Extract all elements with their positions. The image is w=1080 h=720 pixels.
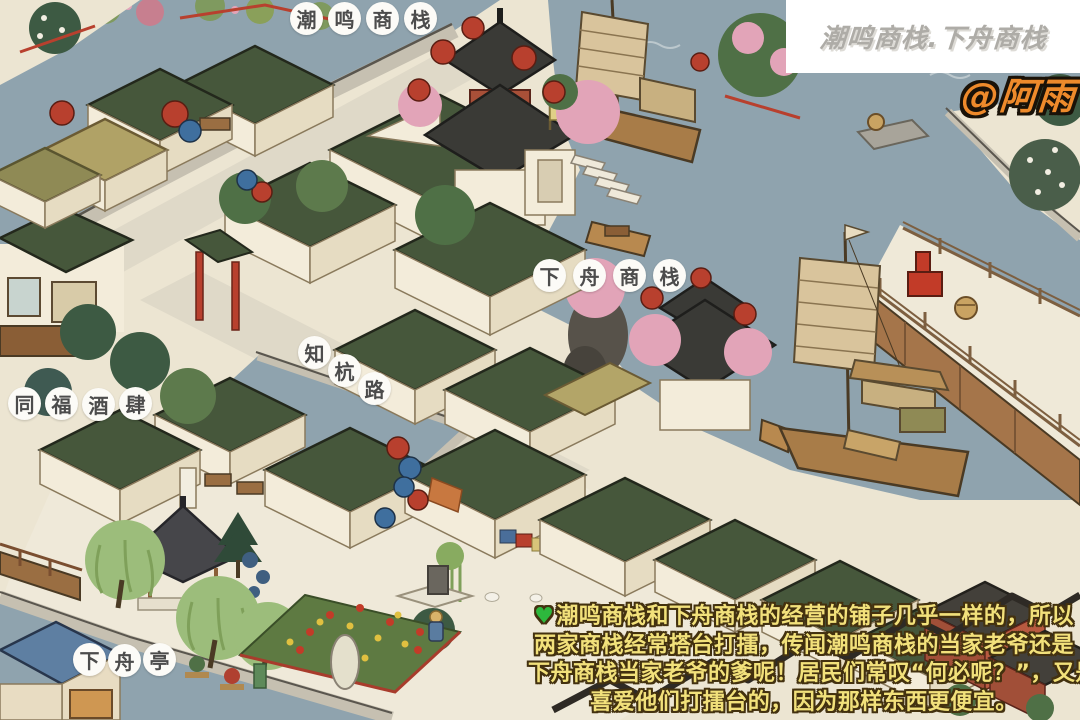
title-band: 潮鸣商栈.下舟商栈 xyxy=(786,0,1080,73)
caption-line: 两家商栈经常搭台打擂，传闻潮鸣商栈的当家老爷还是 xyxy=(528,632,1080,661)
label-char: 鸣 xyxy=(328,2,361,35)
pier-basket xyxy=(955,297,977,319)
label-char: 酒 xyxy=(82,388,115,421)
label-char: 肆 xyxy=(119,387,152,420)
caption-line: 喜爱他们打擂台的，因为那样东西更便宜。 xyxy=(528,689,1080,718)
label-char: 栈 xyxy=(653,259,686,292)
leaf-stone xyxy=(331,635,359,689)
caption-line: 下舟商栈当家老爷的爹呢！居民们常叹“何必呢？”，又是 xyxy=(528,660,1080,689)
label-char: 下 xyxy=(533,259,566,292)
author-watermark: @阿雨 xyxy=(928,66,1079,120)
caption: ♥潮鸣商栈和下舟商栈的经营的铺子几乎一样的，所以 两家商栈经常搭台打擂，传闻潮鸣… xyxy=(528,603,1080,717)
game-viewport: 潮鸣商栈.下舟商栈 @阿雨 潮 鸣 商 栈 下 舟 商 栈 知 杭 路 同 福 … xyxy=(0,0,1080,720)
label-char: 路 xyxy=(358,372,391,405)
label-char: 潮 xyxy=(290,2,323,35)
green-heart-icon: ♥ xyxy=(534,604,554,629)
label-char: 舟 xyxy=(108,644,141,677)
label-char: 福 xyxy=(45,387,78,420)
villager[interactable] xyxy=(429,611,443,641)
label-char: 下 xyxy=(73,643,106,676)
page-title: 潮鸣商栈.下舟商栈 xyxy=(818,18,1047,55)
label-char: 杭 xyxy=(328,354,361,387)
caption-text: 潮鸣商栈和下舟商栈的经营的铺子几乎一样的，所以 xyxy=(556,604,1074,629)
label-char: 同 xyxy=(8,387,41,420)
label-char: 商 xyxy=(613,259,646,292)
label-char: 知 xyxy=(298,336,331,369)
label-char: 亭 xyxy=(143,643,176,676)
label-char: 商 xyxy=(366,2,399,35)
label-char: 舟 xyxy=(573,259,606,292)
caption-line: ♥潮鸣商栈和下舟商栈的经营的铺子几乎一样的，所以 xyxy=(528,603,1080,632)
label-char: 栈 xyxy=(404,2,437,35)
